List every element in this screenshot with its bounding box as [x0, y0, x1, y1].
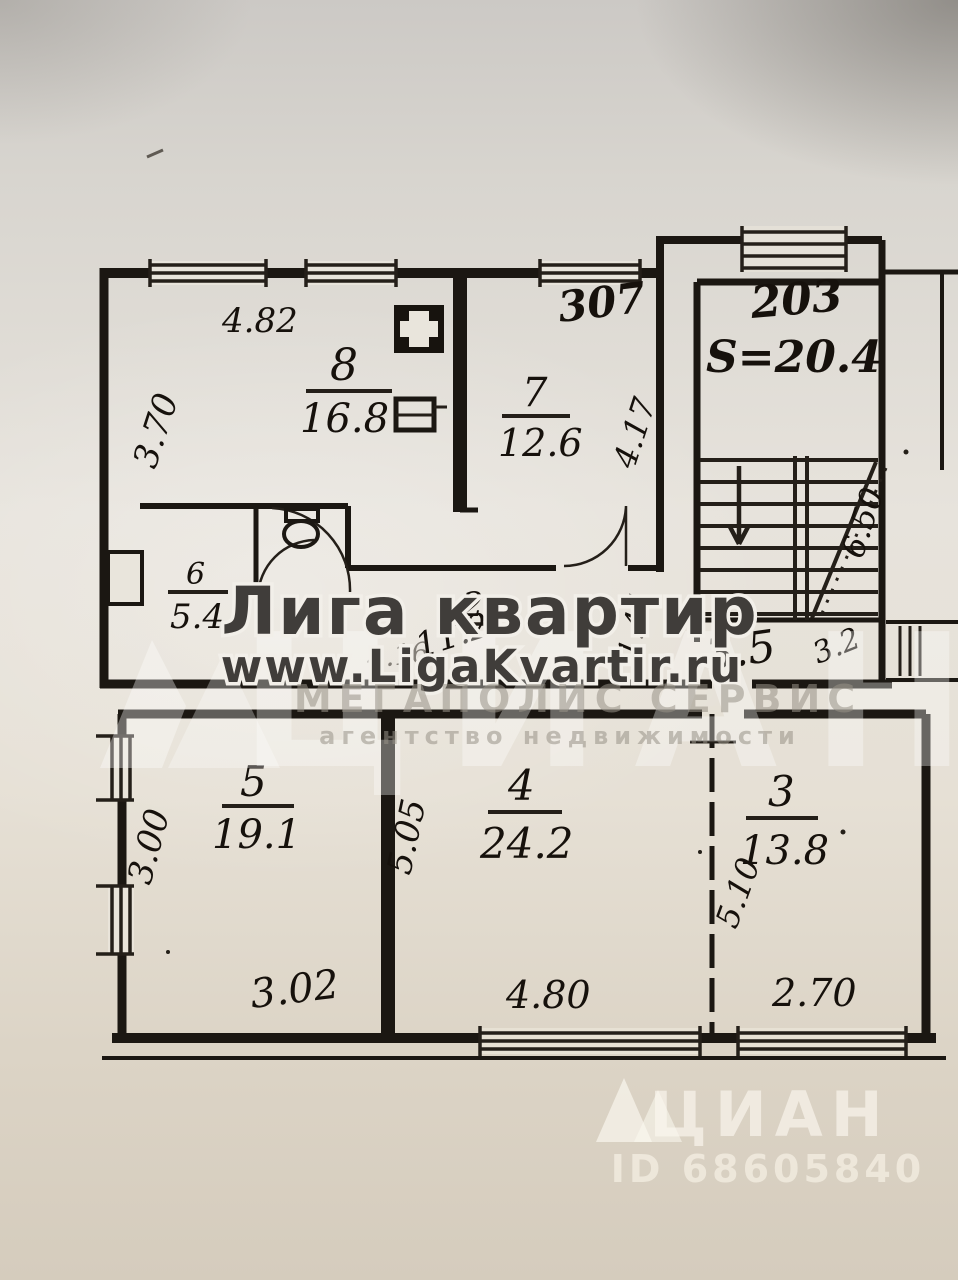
room7-area: 12.6	[498, 421, 583, 465]
scanned-floor-plan-photo: 4.82 8 16.8 3.70 307 7 12.6 4.17 203 S=2…	[0, 0, 958, 1280]
paper-speck	[147, 150, 163, 157]
wc-number: 6	[186, 557, 205, 592]
dim-room8-depth: 3.70	[126, 388, 187, 472]
dim-room4-width: 4.80	[505, 973, 591, 1017]
cian-listing-id: ID 68605840	[611, 1147, 925, 1191]
room8-number: 8	[330, 340, 358, 391]
window-bottom-room3	[738, 1026, 906, 1056]
apartment-number-307: 307	[555, 273, 648, 332]
cian-corner-watermark: ЦИАН ID 68605840	[596, 1078, 925, 1191]
wc-area: 5.4	[170, 597, 224, 637]
vent-shaft-symbol	[394, 305, 444, 353]
dim-room3-depth: 5.10	[708, 853, 768, 933]
dim-room3-width: 2.70	[771, 971, 857, 1015]
window	[150, 259, 266, 287]
agency-brand-text: Лига квартир	[221, 573, 758, 650]
room4-area: 24.2	[479, 819, 574, 868]
cian-logo-ghost	[100, 640, 186, 768]
wall-niche	[108, 552, 142, 604]
window-bottom-room4	[480, 1026, 700, 1056]
stairwell-window	[742, 226, 846, 272]
dim-room8-width: 4.82	[221, 301, 298, 341]
window-left-2	[96, 886, 134, 954]
cian-corner-text: ЦИАН	[649, 1078, 890, 1151]
stairwell-area: S=20.4	[706, 332, 882, 383]
room8-area: 16.8	[300, 396, 389, 442]
dim-room5-width: 3.02	[248, 961, 342, 1018]
agency-name-faded: МЕГАПОЛИС СЕРВИС	[294, 677, 862, 721]
room7-door-swing	[564, 506, 626, 566]
sink-symbol	[396, 399, 447, 430]
dim-room7-depth: 4.17	[605, 392, 664, 473]
dim-room5-depth: 3.00	[120, 805, 178, 888]
floor-plan-drawing: 4.82 8 16.8 3.70 307 7 12.6 4.17 203 S=2…	[0, 0, 958, 1280]
window	[306, 259, 396, 287]
room5-area: 19.1	[212, 812, 301, 858]
room7-number: 7	[522, 370, 548, 416]
agency-subtitle-faded: агентство недвижимости	[319, 722, 801, 750]
stairwell-unit-number: 203	[748, 270, 845, 329]
